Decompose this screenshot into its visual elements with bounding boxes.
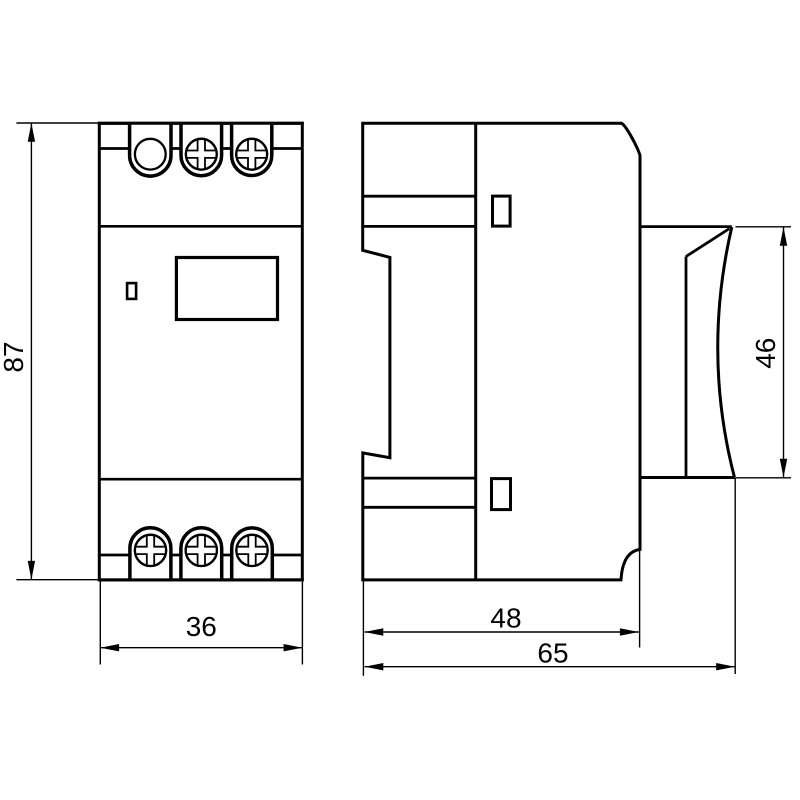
- svg-text:48: 48: [490, 603, 521, 634]
- svg-text:65: 65: [537, 638, 568, 669]
- svg-text:46: 46: [750, 338, 781, 369]
- svg-text:36: 36: [186, 611, 217, 642]
- svg-text:87: 87: [0, 341, 29, 372]
